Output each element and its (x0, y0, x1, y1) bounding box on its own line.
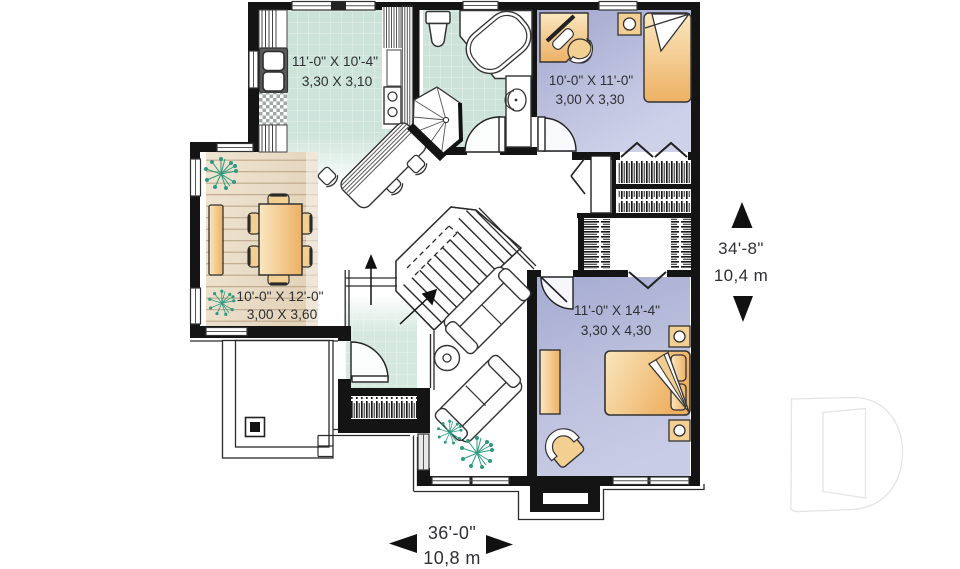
svg-text:11'-0" X 10'-4": 11'-0" X 10'-4" (292, 54, 378, 69)
svg-text:3,00 X 3,30: 3,00 X 3,30 (555, 92, 624, 107)
svg-text:11'-0" X 14'-4": 11'-0" X 14'-4" (574, 303, 660, 318)
svg-text:36'-0": 36'-0" (428, 523, 476, 543)
svg-text:3,00 X 3,60: 3,00 X 3,60 (247, 307, 318, 322)
svg-text:10,8 m: 10,8 m (423, 548, 480, 568)
svg-text:10'-0" X 12'-0": 10'-0" X 12'-0" (236, 289, 323, 304)
svg-text:34'-8": 34'-8" (718, 239, 764, 258)
svg-text:10,4 m: 10,4 m (714, 266, 768, 285)
svg-text:10'-0" X 11'-0": 10'-0" X 11'-0" (549, 73, 633, 88)
svg-text:3,30 X 4,30: 3,30 X 4,30 (581, 323, 652, 338)
svg-text:3,30 X 3,10: 3,30 X 3,10 (302, 74, 373, 89)
